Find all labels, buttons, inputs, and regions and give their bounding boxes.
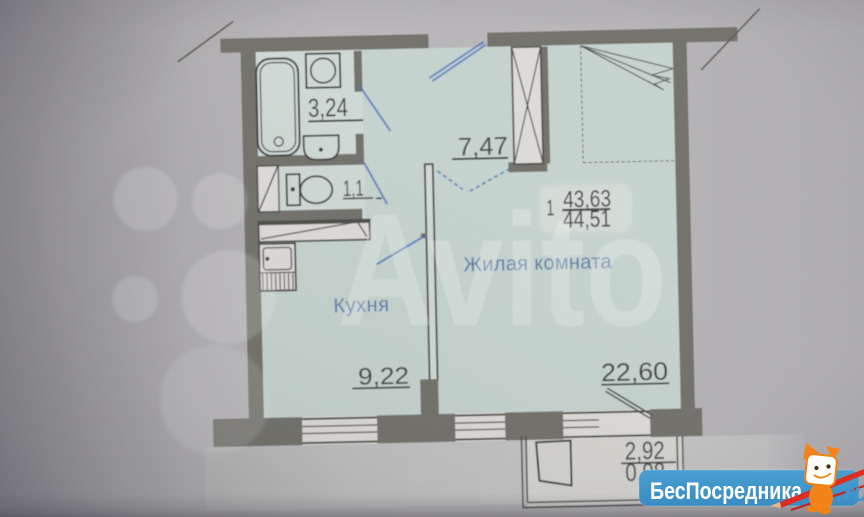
svg-text:.ru: .ru [836,477,864,507]
svg-text:БесПосредника: БесПосредника [650,478,803,505]
